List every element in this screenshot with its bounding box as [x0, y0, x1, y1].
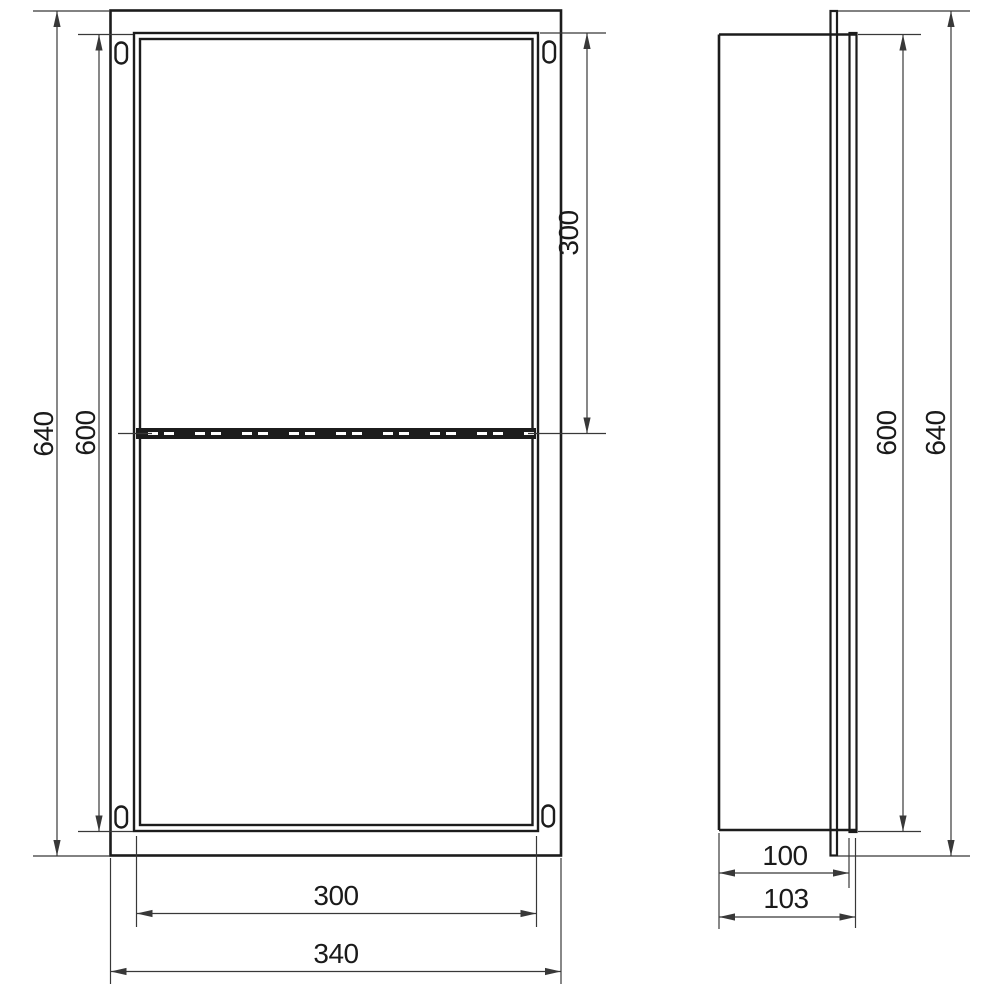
mounting-slot	[544, 42, 556, 63]
mounting-slot	[543, 806, 555, 827]
front-view	[111, 11, 562, 856]
dim-label-front-upper-section-height: 300	[555, 210, 583, 255]
dim-label-front-inner-width: 300	[313, 882, 358, 910]
mounting-slot	[116, 43, 128, 64]
middle-shelf	[136, 428, 536, 439]
dim-label-front-inner-height: 600	[72, 410, 100, 455]
side-flange-plate	[831, 11, 838, 856]
dim-label-side-body-depth: 100	[762, 842, 807, 870]
mounting-slot	[116, 807, 128, 828]
dim-label-front-overall-height: 640	[30, 411, 58, 456]
dim-label-side-overall-height: 640	[922, 410, 950, 455]
technical-drawing-canvas: 640 600 300 300 340 100 103 600 640	[0, 0, 1000, 1000]
dim-label-front-overall-width: 340	[313, 940, 358, 968]
side-front-rim	[850, 33, 857, 832]
dim-label-side-total-depth: 103	[763, 885, 808, 913]
drawing-linework	[0, 0, 1000, 1000]
side-view	[719, 11, 857, 856]
dim-label-side-inner-height: 600	[873, 410, 901, 455]
